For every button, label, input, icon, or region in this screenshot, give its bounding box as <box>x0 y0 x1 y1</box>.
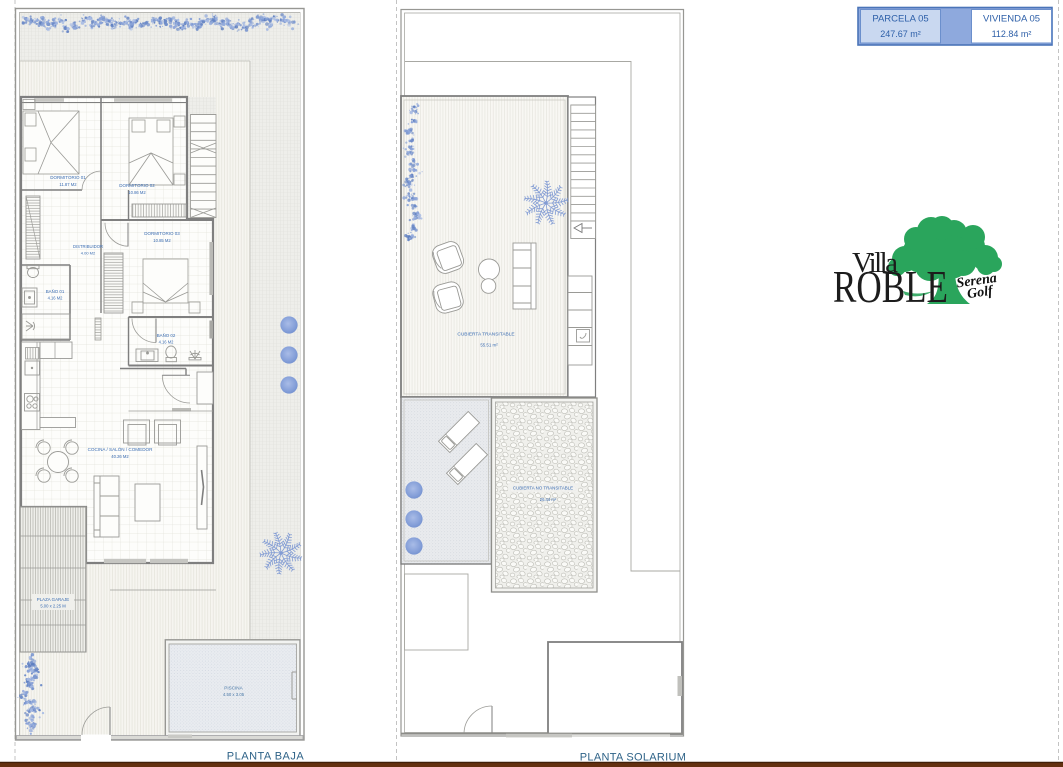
svg-text:PLAZA GARAJE: PLAZA GARAJE <box>37 597 70 602</box>
svg-text:COCINA / SALÓN / COMEDOR: COCINA / SALÓN / COMEDOR <box>88 446 154 452</box>
svg-text:55.51 m²: 55.51 m² <box>480 343 498 348</box>
svg-text:4.00 M2: 4.00 M2 <box>81 251 96 256</box>
svg-text:26.44 m²: 26.44 m² <box>540 497 557 502</box>
svg-text:DISTRIBUIDOR: DISTRIBUIDOR <box>73 244 103 249</box>
svg-text:10.86 M2: 10.86 M2 <box>128 190 146 195</box>
svg-text:CUBIERTA TRANSITABLE: CUBIERTA TRANSITABLE <box>457 332 514 338</box>
svg-text:BAÑO 01: BAÑO 01 <box>46 289 65 294</box>
svg-text:40.26 M2: 40.26 M2 <box>111 454 129 459</box>
svg-text:247.67 m²: 247.67 m² <box>880 29 921 39</box>
svg-text:11.87 M2: 11.87 M2 <box>59 182 77 187</box>
svg-text:DORMITORIO 03: DORMITORIO 03 <box>144 231 180 236</box>
svg-text:PLANTA BAJA: PLANTA BAJA <box>227 751 305 763</box>
svg-text:DORMITORIO 01: DORMITORIO 01 <box>50 175 86 180</box>
svg-text:10.85 M2: 10.85 M2 <box>153 238 171 243</box>
svg-text:BAÑO 02: BAÑO 02 <box>157 333 176 338</box>
svg-text:4.16 M2: 4.16 M2 <box>48 296 64 301</box>
svg-text:5.00 x 2.25 M: 5.00 x 2.25 M <box>40 604 66 609</box>
svg-text:CUBIERTA NO TRANSITABLE: CUBIERTA NO TRANSITABLE <box>513 486 573 491</box>
svg-text:DORMITORIO 02: DORMITORIO 02 <box>119 183 155 188</box>
svg-text:PISCINA: PISCINA <box>224 686 243 691</box>
svg-text:VIVIENDA 05: VIVIENDA 05 <box>983 14 1040 25</box>
svg-text:PARCELA 05: PARCELA 05 <box>872 14 928 25</box>
svg-text:112.84 m²: 112.84 m² <box>992 29 1032 39</box>
svg-text:4.16 M2: 4.16 M2 <box>159 340 175 345</box>
svg-text:ROBLE: ROBLE <box>833 262 948 312</box>
svg-text:4.50 x 3.05: 4.50 x 3.05 <box>223 692 245 697</box>
svg-text:Golf: Golf <box>966 283 995 302</box>
